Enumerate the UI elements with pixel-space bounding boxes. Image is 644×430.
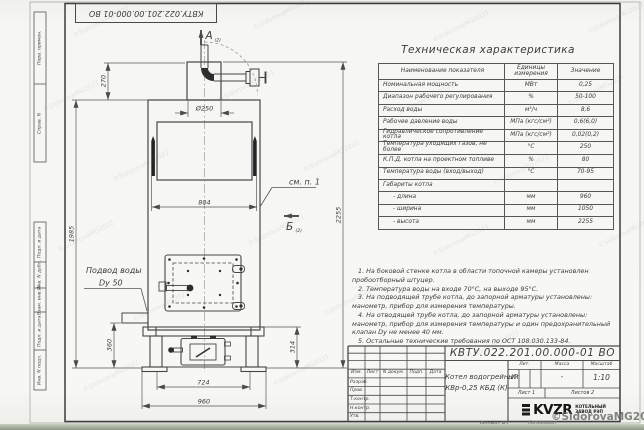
section-b-ref: (2): [296, 228, 303, 234]
row-value: 8,6: [558, 104, 614, 116]
dim-360: 360: [106, 339, 114, 351]
row-units: МВт: [505, 80, 558, 92]
row-name: Диапазон рабочего регулирования: [379, 92, 505, 104]
note-line: манометр, прибор для измерения температу…: [352, 320, 610, 329]
margin-podp-data-1: Подп. и дата: [34, 222, 46, 262]
furnace-door: [159, 255, 245, 311]
note-line: 5. Остальные технические требования по О…: [352, 337, 610, 346]
row-units: МПа (кгс/см²): [505, 129, 558, 142]
stamp-liter-value: И: [508, 374, 519, 381]
row-value: 2255: [558, 217, 614, 229]
table-row: Диапазон рабочего регулирования%50-100: [379, 92, 614, 104]
row-units: %: [505, 92, 558, 104]
dimension-lines: [72, 62, 347, 409]
stamp-col-date: Дата: [426, 371, 445, 376]
row-value: 0,6(6,0): [558, 117, 614, 129]
stamp-doc-number: КВТУ.022.201.00.000-01 ВО: [445, 348, 620, 359]
stamp-scale-value: 1:10: [583, 374, 620, 382]
row-value: 960: [558, 192, 614, 204]
stamp-sheets-total: Листов 2: [545, 391, 620, 396]
row-value: 0,02(0,2): [558, 129, 614, 142]
row-units: [505, 179, 558, 191]
row-name: Расход воды: [379, 104, 505, 116]
row-units: мм: [505, 204, 558, 216]
stamp-scale-header: Масштаб: [583, 363, 620, 368]
water-label-leader: [84, 289, 147, 312]
table-row: К.П.Д. котла на проектном топливе%80: [379, 155, 614, 167]
section-a-label: А: [205, 30, 213, 42]
table-row: Гидравлическое сопротивление котлаМПа (к…: [379, 129, 614, 142]
dim-724: 724: [197, 379, 209, 387]
table-row: Расход водым³/ч8,6: [379, 104, 614, 116]
table-row: Температура воды (вход/выход)°С70-95: [379, 167, 614, 179]
table-row: - высотамм2255: [379, 217, 614, 229]
row-name: Гидравлическое сопротивление котла: [379, 129, 505, 142]
row-name: К.П.Д. котла на проектном топливе: [379, 155, 505, 167]
stamp-row-utv: Утв.: [350, 415, 380, 420]
row-units: %: [505, 155, 558, 167]
window-clamps: [151, 136, 256, 176]
row-value: 80: [558, 155, 614, 167]
table-row: Габариты котла: [379, 179, 614, 191]
dim-314: 314: [289, 341, 297, 353]
row-value: [558, 179, 614, 191]
photo-edge-band: [0, 424, 644, 430]
dim-1985: 1985: [68, 226, 76, 243]
ash-damper-flap: [196, 348, 210, 357]
note-line: 1. На боковой стенке котла в области топ…: [352, 267, 610, 276]
header-name: Наименование показателя: [379, 64, 505, 80]
watermark-copyright: ©SidorovaMG2021: [551, 411, 644, 423]
stamp-row-tkontr: Т.контр.: [350, 398, 380, 403]
note-line: манометр, прибор для измерения температу…: [352, 302, 610, 311]
stamp-col-izm: Изм.: [348, 371, 365, 376]
stamp-product-name-2: КВр-0,25 КБД (К): [445, 385, 508, 392]
stamp-mass-value: -: [541, 374, 583, 381]
row-units: мм: [505, 192, 558, 204]
dim-250: Ø250: [195, 105, 214, 113]
table-row: - длинамм960: [379, 192, 614, 204]
row-name: - длина: [379, 192, 505, 204]
row-units: °С: [505, 167, 558, 179]
row-units: мм: [505, 217, 558, 229]
furnace-door-bolts: [167, 257, 242, 309]
stamp-col-doc: N докум.: [380, 371, 407, 376]
section-a-ref: (2): [215, 38, 222, 44]
row-units: м³/ч: [505, 104, 558, 116]
row-name: Температура воды (вход/выход): [379, 167, 505, 179]
chimney-assembly: [201, 42, 266, 95]
top-doc-number-box: КВТУ.022.201.00.000-01 ВО: [75, 3, 217, 23]
note-line: 2. Температура воды на входе 70°С, на вы…: [352, 285, 610, 294]
stamp-col-list: Лист: [365, 371, 380, 376]
note-line: клапан Dy не менее 40 мм.: [352, 328, 610, 337]
row-units: МПа (кгс/см²): [505, 117, 558, 129]
logo-mark-icon: [522, 404, 530, 417]
margin-podp-data-2: Подп. и дата: [34, 312, 46, 350]
row-name: - высота: [379, 217, 505, 229]
row-value: 70-95: [558, 167, 614, 179]
dim-2255: 2255: [335, 207, 343, 224]
row-value: 0,25: [558, 80, 614, 92]
table-row: Рабочее давление водыМПа (кгс/см²)0,6(6,…: [379, 117, 614, 129]
boiler-base: [142, 327, 266, 372]
water-label-1: Подвод воды: [86, 266, 142, 275]
water-label-2: Dy 50: [99, 279, 123, 288]
table-row: - ширинамм1050: [379, 204, 614, 216]
tech-table: Наименование показателя Единицы измерени…: [378, 63, 614, 230]
water-inlet-stub: [122, 313, 148, 323]
row-name: Номинальная мощность: [379, 80, 505, 92]
tech-table-title: Техническая характеристика: [378, 44, 598, 56]
note-line: 4. На отводящей трубе котла, до запорной…: [352, 311, 610, 320]
dim-960: 960: [198, 398, 210, 406]
see-note-callout: [261, 188, 317, 207]
row-units: °С: [505, 142, 558, 155]
margin-sprav-n: Справ. N: [34, 84, 46, 162]
table-header-row: Наименование показателя Единицы измерени…: [379, 64, 614, 80]
stamp-sheet-no: Лист 1: [508, 391, 545, 396]
section-marker-b: Б (2): [284, 216, 302, 234]
stamp-lit-header: Лит.: [508, 363, 541, 368]
section-b-label: Б: [286, 221, 293, 233]
drawing-sheet: А (2) Б (2) см. п. 1 Подвод воды Dy 50: [0, 0, 644, 430]
row-value: 1050: [558, 204, 614, 216]
row-value: 250: [558, 142, 614, 155]
row-name: - ширина: [379, 204, 505, 216]
row-name: Температура уходящих газов, не более: [379, 142, 505, 155]
row-value: 50-100: [558, 92, 614, 104]
margin-inv-podl: Инв. N подл.: [34, 350, 46, 390]
header-units: Единицы измерения: [505, 64, 558, 80]
stamp-product-name-1: Котел водогрейный: [445, 374, 508, 381]
stamp-col-sign: Подп.: [407, 371, 426, 376]
note-line: пробоотборный штуцер.: [352, 276, 610, 285]
header-value: Значение: [558, 64, 614, 80]
top-doc-number: КВТУ.022.201.00.000-01 ВО: [89, 9, 203, 18]
stamp-row-prov: Пров.: [350, 389, 380, 394]
stamp-row-nkontr: Н.контр.: [350, 407, 380, 412]
note-line: 3. На подводящей трубе котла, до запорно…: [352, 293, 610, 302]
technical-notes: 1. На боковой стенке котла в области топ…: [352, 267, 610, 346]
stamp-mass-header: Масса: [541, 363, 583, 368]
stamp-row-razrab: Разраб.: [350, 381, 380, 386]
table-row: Температура уходящих газов, не более°С25…: [379, 142, 614, 155]
see-note-label: см. п. 1: [289, 178, 320, 187]
margin-perv-primen: Перв. примен.: [34, 12, 46, 84]
margin-vzam-inv: Взам. инв. N: [34, 288, 46, 312]
valve: [246, 69, 266, 86]
table-row: Номинальная мощностьМВт0,25: [379, 80, 614, 92]
row-name: Габариты котла: [379, 179, 505, 191]
dim-270: 270: [100, 75, 108, 87]
dimension-labels: 1985 270 360 2255 314 804 Ø250 724 960: [68, 75, 343, 406]
row-name: Рабочее давление воды: [379, 117, 505, 129]
dim-804: 804: [198, 199, 210, 207]
